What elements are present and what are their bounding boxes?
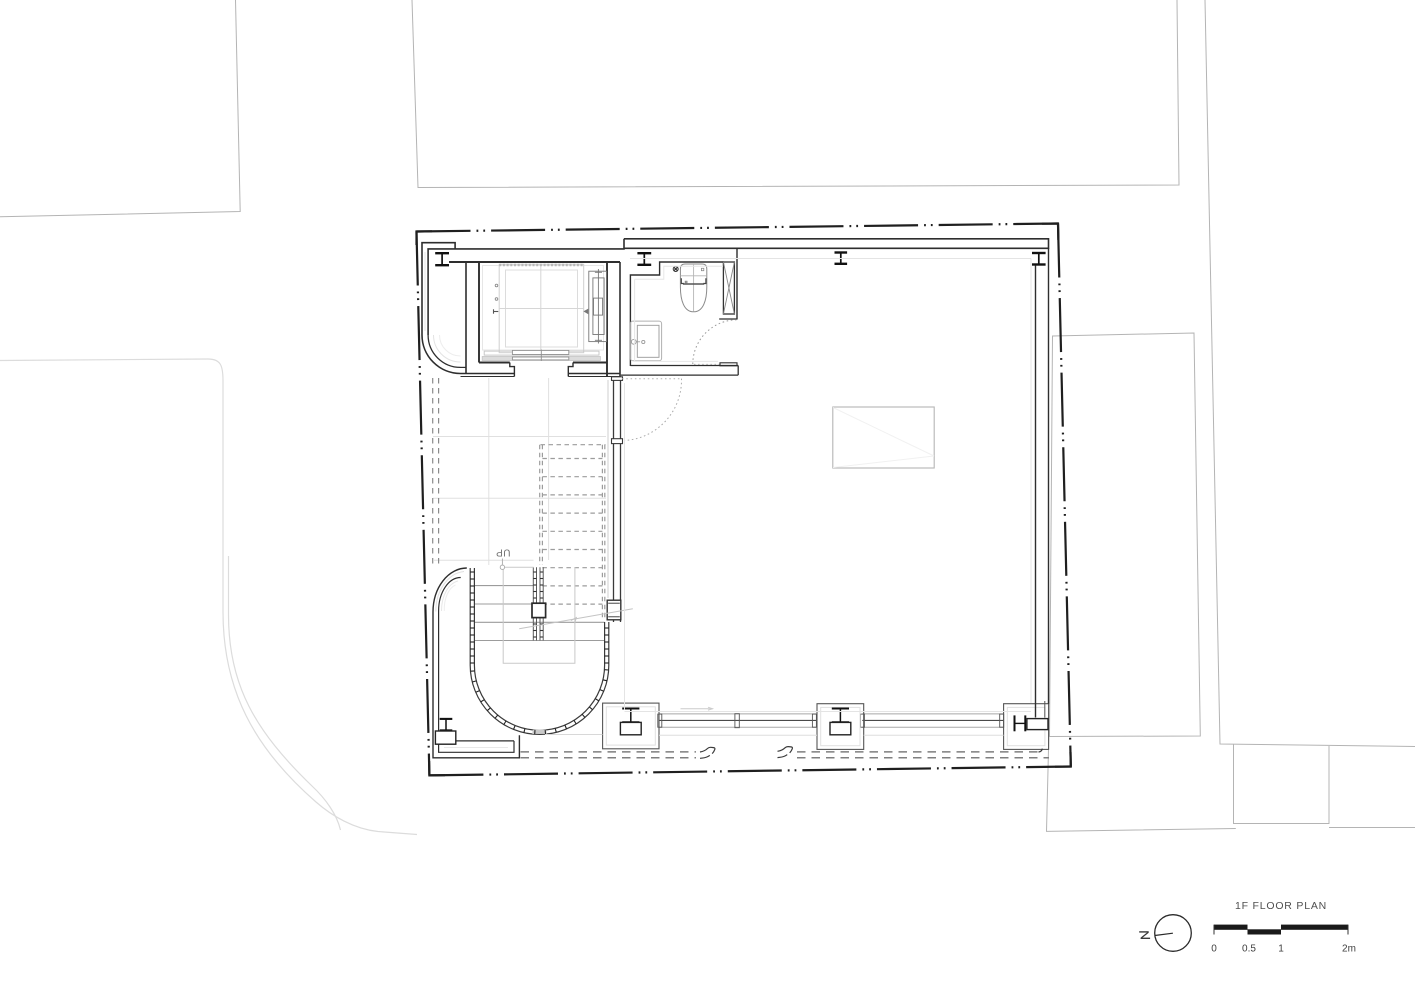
svg-text:0.5: 0.5: [1242, 944, 1256, 955]
svg-text:1: 1: [1278, 944, 1284, 955]
svg-text:UP: UP: [496, 547, 511, 558]
svg-text:2m: 2m: [1342, 944, 1356, 955]
svg-text:1F FLOOR PLAN: 1F FLOOR PLAN: [1235, 900, 1327, 912]
svg-text:0: 0: [1211, 944, 1217, 955]
